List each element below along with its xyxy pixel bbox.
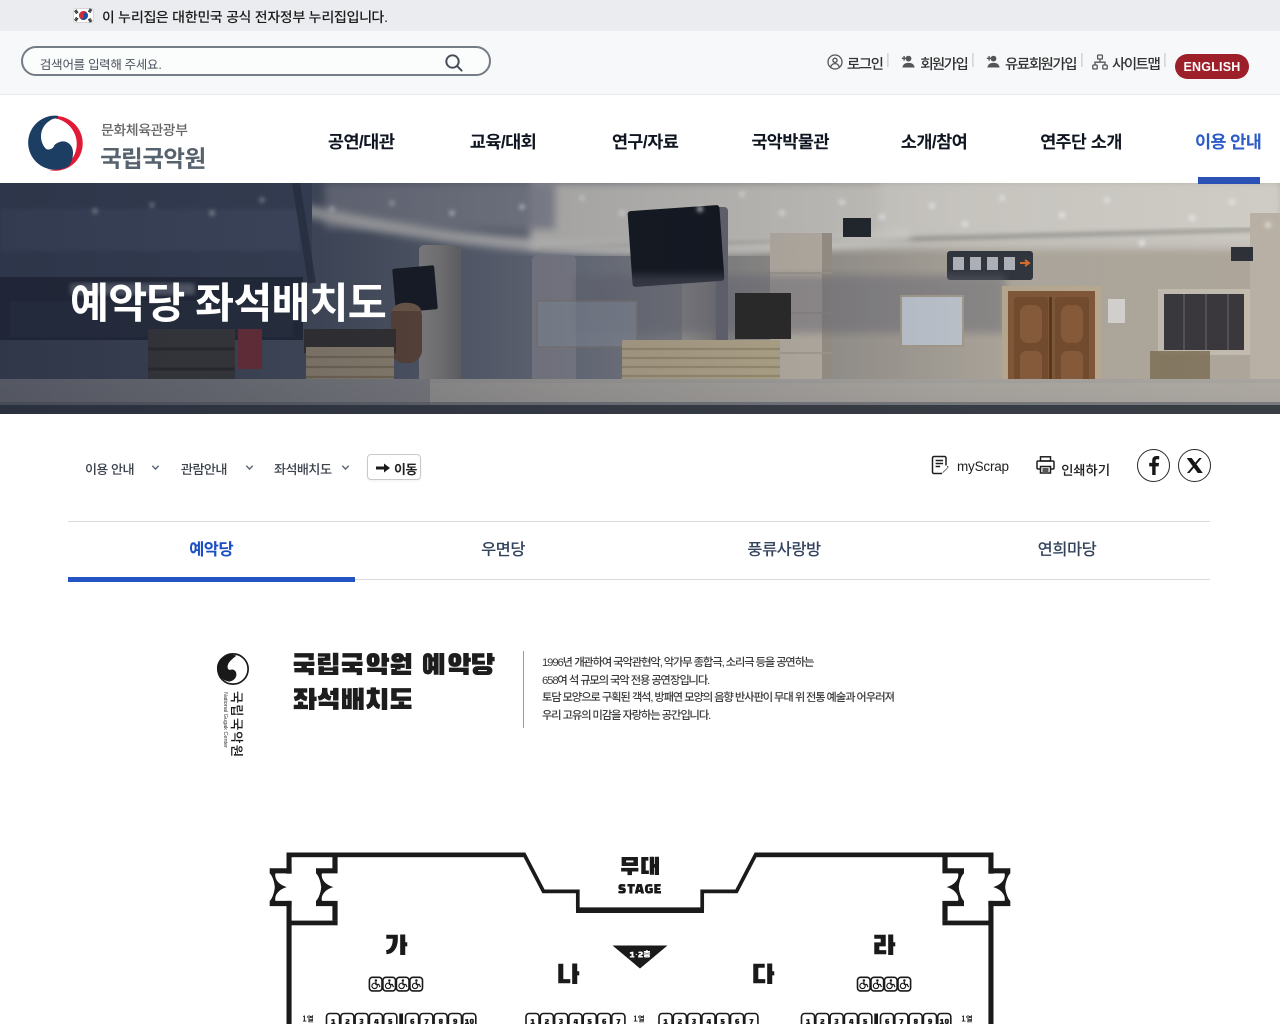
svg-text:1열: 1열: [302, 1014, 313, 1024]
svg-text:6: 6: [410, 1018, 415, 1024]
svg-text:5: 5: [587, 1018, 592, 1024]
svg-text:1: 1: [663, 1018, 668, 1024]
svg-text:2: 2: [345, 1018, 350, 1024]
svg-text:STAGE: STAGE: [618, 884, 662, 897]
svg-text:7: 7: [899, 1018, 904, 1024]
svg-text:7: 7: [616, 1018, 621, 1024]
svg-text:1: 1: [806, 1018, 811, 1024]
svg-text:5: 5: [720, 1018, 725, 1024]
svg-text:2: 2: [820, 1018, 825, 1024]
svg-text:3: 3: [558, 1018, 564, 1024]
svg-text:3: 3: [358, 1018, 364, 1024]
svg-text:7: 7: [749, 1018, 754, 1024]
svg-text:8: 8: [438, 1018, 443, 1024]
svg-text:나: 나: [557, 963, 581, 990]
svg-text:1열: 1열: [633, 1014, 644, 1024]
svg-text:다: 다: [752, 963, 776, 990]
svg-text:5: 5: [388, 1018, 393, 1024]
svg-text:6: 6: [602, 1018, 607, 1024]
svg-text:6: 6: [885, 1018, 890, 1024]
svg-text:10: 10: [939, 1018, 949, 1024]
svg-text:6: 6: [735, 1018, 740, 1024]
svg-text:3: 3: [691, 1018, 697, 1024]
svg-text:2: 2: [544, 1018, 549, 1024]
svg-text:3: 3: [833, 1018, 839, 1024]
svg-text:1열: 1열: [961, 1014, 972, 1024]
svg-text:1: 1: [530, 1018, 535, 1024]
svg-text:8: 8: [913, 1018, 918, 1024]
svg-text:5: 5: [863, 1018, 868, 1024]
svg-text:가: 가: [385, 934, 408, 961]
svg-text:1·2층: 1·2층: [629, 950, 651, 960]
svg-text:무대: 무대: [620, 856, 661, 881]
svg-text:10: 10: [464, 1018, 474, 1024]
svg-text:라: 라: [873, 934, 897, 961]
svg-text:2: 2: [677, 1018, 682, 1024]
svg-text:1: 1: [331, 1018, 336, 1024]
svg-text:7: 7: [424, 1018, 429, 1024]
